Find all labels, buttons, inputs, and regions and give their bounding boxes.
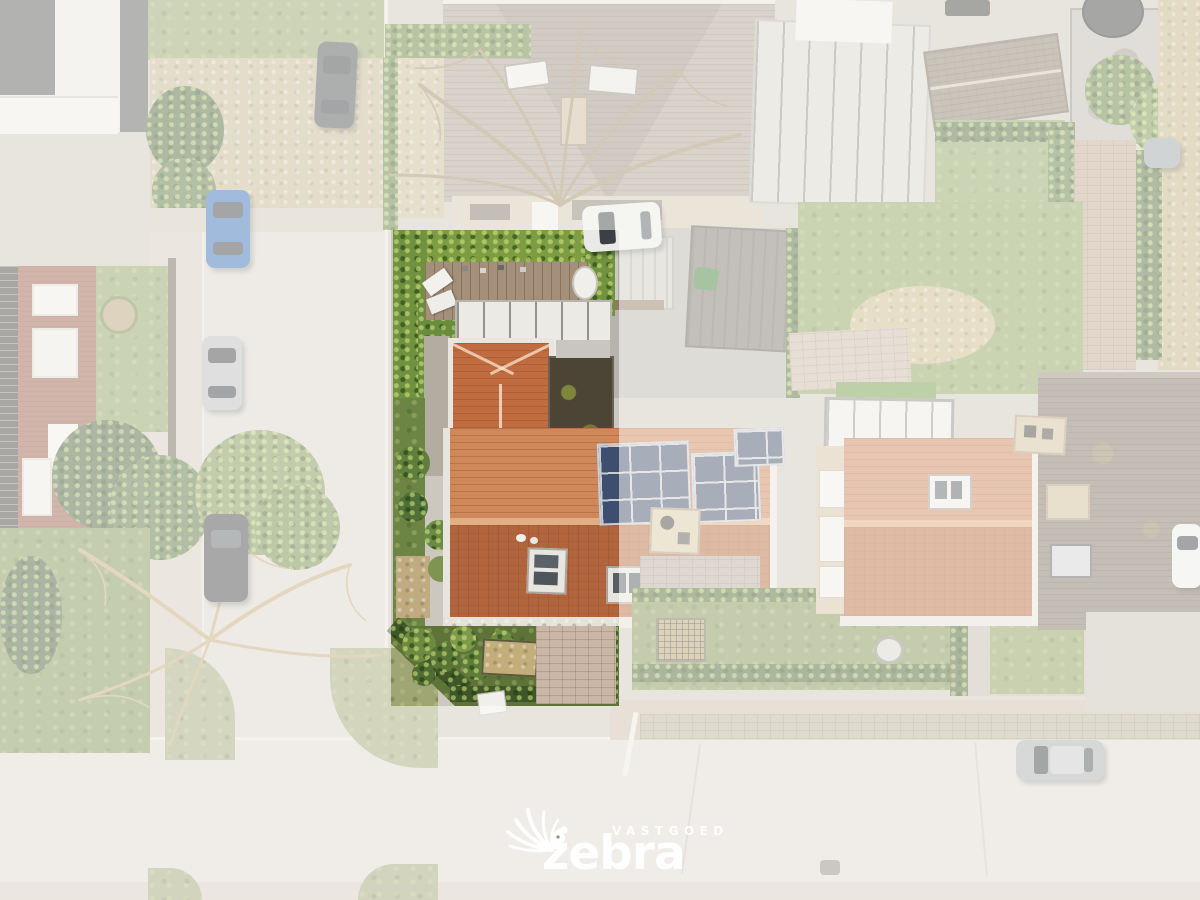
bush xyxy=(398,492,428,522)
deck-clutter xyxy=(462,266,468,271)
ornamental-grass-bed xyxy=(481,639,539,678)
watermark-brand: zebra xyxy=(542,830,685,877)
gravel-patch xyxy=(396,556,430,618)
extension-ridge-line xyxy=(490,342,554,375)
fade-overlay-top xyxy=(0,0,1200,230)
deck-clutter xyxy=(498,265,504,270)
fade-overlay-right xyxy=(619,230,1200,706)
roof-window-pane xyxy=(534,572,558,586)
roof-vent xyxy=(530,537,538,544)
bush xyxy=(396,446,430,480)
subject-roof-ridge xyxy=(448,518,618,525)
roof-window xyxy=(526,547,568,594)
subject-roof-gutter-left xyxy=(443,428,450,624)
boxwood-ball xyxy=(412,662,436,686)
extension-ridge-line xyxy=(450,342,514,375)
boxwood-ball xyxy=(450,626,476,652)
roof-vent xyxy=(516,534,526,542)
gray-patch xyxy=(556,340,610,358)
deck-clutter xyxy=(480,268,486,273)
subject-driveway xyxy=(536,626,616,704)
deck-clutter xyxy=(520,267,526,272)
subject-roof-upper xyxy=(448,428,618,520)
fade-overlay-left xyxy=(0,230,391,706)
garden-table xyxy=(572,266,598,300)
watermark: VASTGOED zebra xyxy=(498,792,718,892)
roof-window-pane xyxy=(534,555,558,569)
aerial-photo: VASTGOED zebra xyxy=(0,0,1200,900)
